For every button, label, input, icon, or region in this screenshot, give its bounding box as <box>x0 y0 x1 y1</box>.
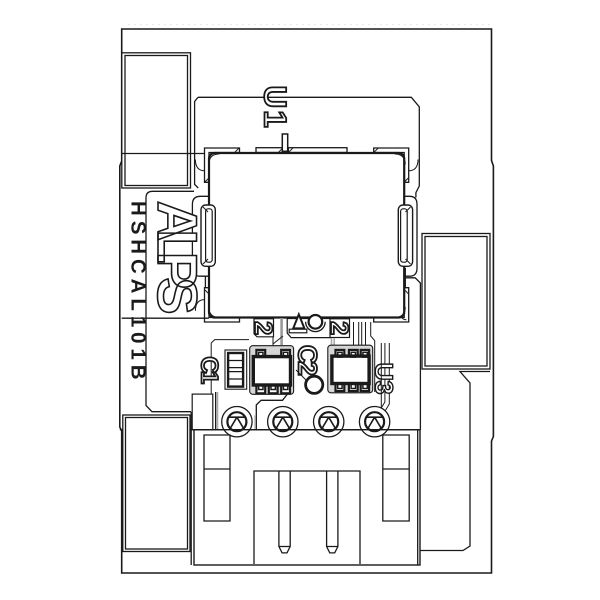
svg-text:ALPS: ALPS <box>146 201 209 314</box>
svg-text:HSHCAL101B: HSHCAL101B <box>127 201 150 384</box>
svg-text:U3: U3 <box>370 363 398 395</box>
svg-text:2: 2 <box>325 321 353 335</box>
svg-text:U1: U1 <box>258 86 294 130</box>
svg-text:C1: C1 <box>196 356 223 383</box>
svg-text:2: 2 <box>249 321 277 335</box>
